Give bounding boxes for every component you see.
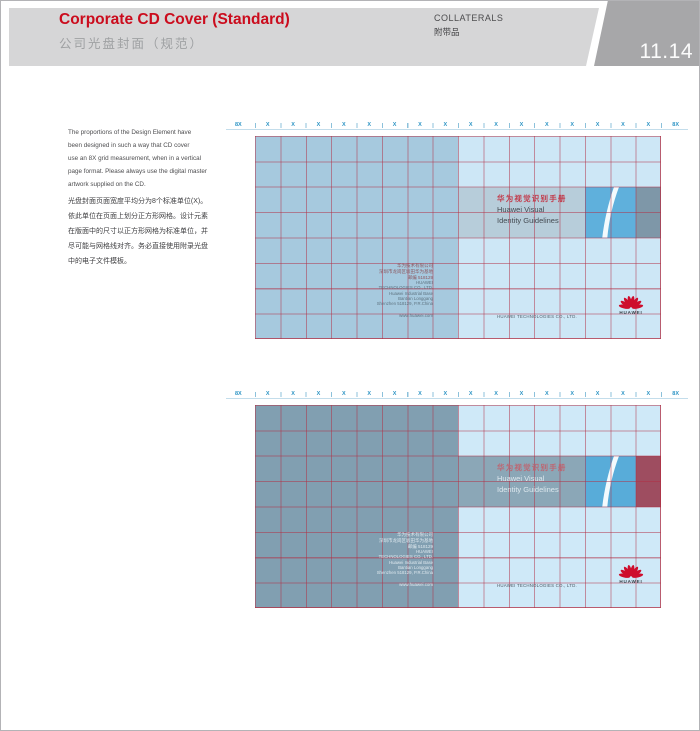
- ruler-unit-x: X: [407, 121, 432, 130]
- ruler-unit-x: X: [585, 390, 610, 399]
- cover-title-en-line1: Huawei Visual: [497, 473, 567, 484]
- ruler-unit-x: X: [280, 121, 305, 130]
- ruler-unit-x: X: [407, 390, 432, 399]
- cover-title-cn: 华为视觉识别手册: [497, 462, 567, 473]
- cd-cover-artwork: 华为视觉识别手册 Huawei Visual Identity Guidelin…: [255, 136, 661, 339]
- intro-line-en: artwork supplied on the CD.: [68, 178, 220, 191]
- ruler-unit-x: X: [255, 390, 280, 399]
- ruler-unit-x: X: [483, 390, 508, 399]
- intro-line-en: page format. Please always use the digit…: [68, 165, 220, 178]
- ruler-unit-x: X: [331, 121, 356, 130]
- cover-title-cn: 华为视觉识别手册: [497, 193, 567, 204]
- company-name-line: HUAWEI TECHNOLOGIES CO., LTD.: [497, 314, 577, 319]
- page-title: Corporate CD Cover (Standard): [59, 11, 290, 29]
- ruler-unit-x: X: [458, 121, 483, 130]
- page-border: [0, 0, 700, 731]
- huawei-wordmark: HUAWEI: [617, 579, 645, 584]
- cover-title-en-line2: Identity Guidelines: [497, 215, 567, 226]
- address-block: 华为技术有限公司深圳市龙岗区坂田华为基地邮编 518129 HUAWEITECH…: [377, 532, 433, 575]
- ruler-unit-x: X: [560, 121, 585, 130]
- ruler-unit-x: X: [255, 121, 280, 130]
- grid-ruler: 8X XXXXXXXXXXXXXXXX 8X: [226, 121, 688, 130]
- address-line-en: Shenzhen 518129, P.R.China: [377, 570, 433, 575]
- ruler-unit-x: X: [636, 121, 661, 130]
- ruler-unit-x: X: [331, 390, 356, 399]
- ruler-unit-x: X: [610, 121, 635, 130]
- ruler-unit-x: X: [280, 390, 305, 399]
- address-line-cn: 深圳市龙岗区坂田华为基地: [377, 269, 433, 275]
- cover-title-block: 华为视觉识别手册 Huawei Visual Identity Guidelin…: [497, 462, 567, 495]
- ruler-label-8x-right: 8X: [672, 121, 679, 129]
- ruler-unit-x: X: [534, 121, 559, 130]
- ruler-unit-labels: XXXXXXXXXXXXXXXX: [255, 390, 661, 399]
- huawei-wordmark: HUAWEI: [617, 310, 645, 315]
- grid-ruler: 8X XXXXXXXXXXXXXXXX 8X: [226, 390, 688, 399]
- ruler-unit-x: X: [382, 121, 407, 130]
- ruler-unit-x: X: [534, 390, 559, 399]
- ruler-unit-x: X: [306, 390, 331, 399]
- address-block: 华为技术有限公司深圳市龙岗区坂田华为基地邮编 518129 HUAWEITECH…: [377, 263, 433, 306]
- ruler-label-8x-right: 8X: [672, 390, 679, 398]
- intro-line-cn: 中的电子文件模板。: [68, 254, 220, 269]
- intro-line-cn: 依此单位在页面上划分正方形网格。设计元素: [68, 209, 220, 224]
- ruler-unit-x: X: [509, 121, 534, 130]
- ruler-unit-x: X: [560, 390, 585, 399]
- ruler-unit-x: X: [433, 121, 458, 130]
- address-line-en: Shenzhen 518129, P.R.China: [377, 301, 433, 306]
- intro-line-cn: 光盘封面页面宽度平均分为8个标准单位(X)。: [68, 194, 220, 209]
- ruler-unit-x: X: [636, 390, 661, 399]
- intro-line-en: The proportions of the Design Element ha…: [68, 126, 220, 139]
- address-en: HUAWEITECHNOLOGIES CO., LTD.Huawei Indus…: [377, 280, 433, 305]
- address-line-en: TECHNOLOGIES CO., LTD.: [377, 554, 433, 559]
- huawei-logo: HUAWEI: [617, 294, 645, 315]
- ruler-unit-x: X: [610, 390, 635, 399]
- cover-title-en-line2: Identity Guidelines: [497, 484, 567, 495]
- grid-overlay: [255, 405, 661, 608]
- grid-overlay: [255, 136, 661, 339]
- huawei-flower-icon: [618, 294, 644, 309]
- intro-paragraph-cn: 光盘封面页面宽度平均分为8个标准单位(X)。依此单位在页面上划分正方形网格。设计…: [68, 194, 220, 269]
- intro-line-cn: 在版面中的尺寸以正方形网格为标准单位，并: [68, 224, 220, 239]
- address-en: HUAWEITECHNOLOGIES CO., LTD.Huawei Indus…: [377, 549, 433, 574]
- ruler-unit-x: X: [585, 121, 610, 130]
- huawei-logo: HUAWEI: [617, 563, 645, 584]
- section-label-en: COLLATERALS: [434, 13, 503, 23]
- ruler-unit-x: X: [382, 390, 407, 399]
- page-subtitle-cn: 公司光盘封面（规范）: [59, 33, 204, 52]
- website-url: www.huawei.com: [399, 313, 433, 318]
- ruler-label-8x-left: 8X: [235, 121, 242, 129]
- ruler-unit-x: X: [306, 121, 331, 130]
- cd-cover-diagram-standard: 8X XXXXXXXXXXXXXXXX 8X 华为视觉识别手册 Huawei V…: [226, 121, 688, 351]
- page-number-block: 11.14: [594, 0, 700, 66]
- cd-cover-diagram-screened: 8X XXXXXXXXXXXXXXXX 8X 华为视觉识别手册 Huawei V…: [226, 390, 688, 620]
- intro-line-en: been designed in such a way that CD cove…: [68, 139, 220, 152]
- ruler-unit-x: X: [458, 390, 483, 399]
- intro-text: The proportions of the Design Element ha…: [68, 126, 220, 269]
- address-line-cn: 深圳市龙岗区坂田华为基地: [377, 538, 433, 544]
- address-line-en: TECHNOLOGIES CO., LTD.: [377, 285, 433, 290]
- ruler-unit-labels: XXXXXXXXXXXXXXXX: [255, 121, 661, 130]
- website-url: www.huawei.com: [399, 582, 433, 587]
- ruler-unit-x: X: [509, 390, 534, 399]
- ruler-unit-x: X: [483, 121, 508, 130]
- ruler-label-8x-left: 8X: [235, 390, 242, 398]
- intro-line-cn: 尽可能与网格线对齐。务必直接使用附录光盘: [68, 239, 220, 254]
- ruler-unit-x: X: [357, 390, 382, 399]
- page-number: 11.14: [640, 40, 694, 64]
- ruler-unit-x: X: [357, 121, 382, 130]
- address-cn: 华为技术有限公司深圳市龙岗区坂田华为基地邮编 518129: [377, 532, 433, 549]
- cover-title-en-line1: Huawei Visual: [497, 204, 567, 215]
- ruler-unit-x: X: [433, 390, 458, 399]
- huawei-flower-icon: [618, 563, 644, 578]
- cd-cover-artwork: 华为视觉识别手册 Huawei Visual Identity Guidelin…: [255, 405, 661, 608]
- company-name-line: HUAWEI TECHNOLOGIES CO., LTD.: [497, 583, 577, 588]
- cover-title-block: 华为视觉识别手册 Huawei Visual Identity Guidelin…: [497, 193, 567, 226]
- section-label-cn: 附带品: [434, 26, 460, 38]
- intro-paragraph-en: The proportions of the Design Element ha…: [68, 126, 220, 191]
- intro-line-en: use an 8X grid measurement, when in a ve…: [68, 152, 220, 165]
- guideline-page: { "header": { "title": "Corporate CD Cov…: [0, 0, 700, 731]
- address-cn: 华为技术有限公司深圳市龙岗区坂田华为基地邮编 518129: [377, 263, 433, 280]
